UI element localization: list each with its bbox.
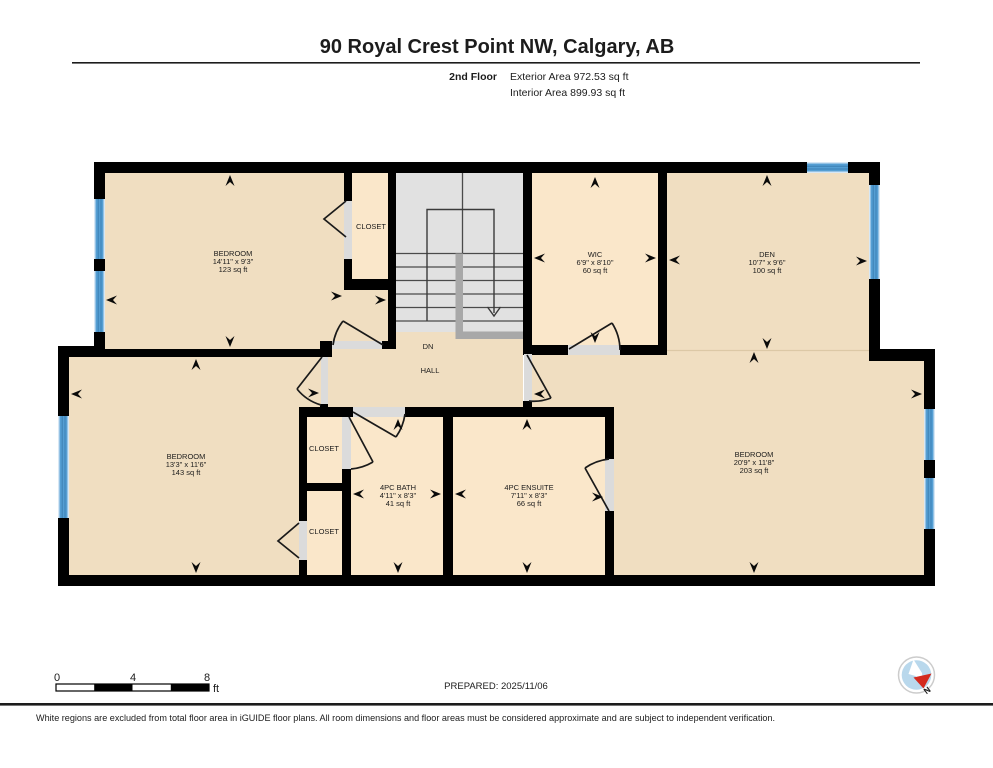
svg-text:100 sq ft: 100 sq ft — [753, 266, 783, 275]
svg-text:60 sq ft: 60 sq ft — [583, 266, 609, 275]
svg-text:CLOSET: CLOSET — [309, 444, 339, 453]
svg-text:HALL: HALL — [421, 366, 440, 375]
svg-text:Exterior Area 972.53 sq ft: Exterior Area 972.53 sq ft — [510, 71, 629, 83]
svg-text:143 sq ft: 143 sq ft — [172, 468, 202, 477]
svg-text:CLOSET: CLOSET — [309, 527, 339, 536]
svg-text:90 Royal Crest Point NW, Calga: 90 Royal Crest Point NW, Calgary, AB — [320, 36, 675, 58]
svg-text:ft: ft — [213, 683, 219, 695]
svg-text:41 sq ft: 41 sq ft — [386, 499, 412, 508]
svg-text:CLOSET: CLOSET — [356, 222, 386, 231]
svg-text:PREPARED: 2025/11/06: PREPARED: 2025/11/06 — [444, 681, 548, 692]
svg-text:0: 0 — [54, 672, 60, 684]
svg-text:2nd Floor: 2nd Floor — [449, 71, 497, 83]
svg-text:66 sq ft: 66 sq ft — [517, 499, 543, 508]
svg-text:123 sq ft: 123 sq ft — [219, 265, 249, 274]
svg-text:4: 4 — [130, 672, 136, 684]
svg-text:8: 8 — [204, 672, 210, 684]
svg-text:203 sq ft: 203 sq ft — [740, 466, 770, 475]
svg-text:White regions are excluded fro: White regions are excluded from total fl… — [36, 713, 775, 723]
svg-text:Interior Area 899.93 sq ft: Interior Area 899.93 sq ft — [510, 87, 625, 99]
svg-text:DN: DN — [423, 342, 434, 351]
